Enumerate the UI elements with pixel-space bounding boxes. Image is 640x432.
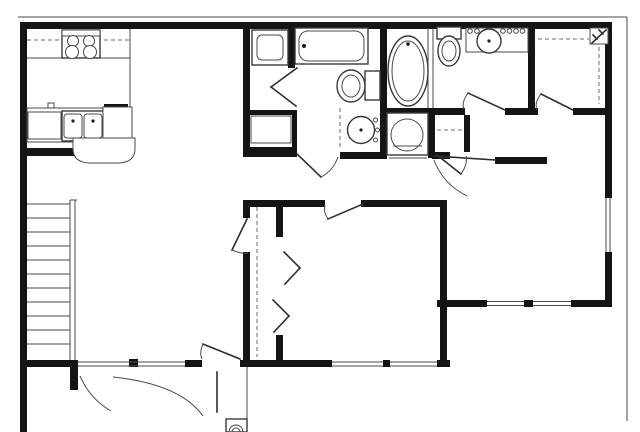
wall-kitchen-divider — [20, 148, 75, 156]
toilet-tank — [365, 71, 380, 100]
wall-closet-bottom — [573, 108, 612, 115]
stove-burner — [66, 46, 79, 59]
utility-closet-inner — [251, 116, 291, 143]
vanity-light-bulb — [475, 29, 480, 34]
stove-burner — [68, 36, 79, 47]
wall-laundry-right — [428, 115, 435, 158]
wall-closet-partition-a — [276, 200, 283, 237]
wall-bedroom-mid-right — [440, 207, 447, 367]
stove-burner — [84, 36, 95, 47]
wall-hall-south — [495, 157, 547, 164]
wall-bottom-stub — [383, 360, 390, 367]
garden-tub-faucet-dot — [406, 42, 410, 46]
sink-drain-dot — [359, 128, 362, 131]
door-leaf-bedroom-mid-bottom — [203, 344, 240, 359]
faucet-dot — [91, 119, 94, 122]
vanity-light-bulb — [507, 29, 512, 34]
window-side-opening — [604, 198, 613, 252]
door-leaf-bedroom-mid-left — [232, 219, 247, 250]
floor-plan-page — [0, 0, 640, 432]
shower-pan — [257, 35, 283, 60]
master-toilet-bowl-inner — [442, 41, 456, 61]
stove-burner — [84, 46, 97, 59]
dishwasher — [28, 112, 61, 139]
utility-closet-wall-top — [245, 110, 297, 115]
wall-bedroom-mid-left-b — [243, 252, 250, 367]
wall-walkin-closet-left — [528, 28, 535, 115]
sink-bowl-right — [84, 114, 102, 138]
vanity-light-bulb — [520, 29, 525, 34]
door-leaf-bedroom-mid-top — [328, 204, 363, 219]
wall-bottom-b — [185, 360, 202, 367]
vanity-light-bulb — [514, 29, 519, 34]
faucet-knob — [376, 128, 380, 132]
door-leaf-hallbath — [297, 154, 321, 177]
faucet-knob — [374, 118, 378, 122]
door-arc-bedroom-mid-left — [232, 250, 248, 253]
door-leaf-walkin-closet — [541, 94, 573, 110]
wall-bottom-c — [240, 360, 332, 367]
wall-hallbath-right — [380, 28, 387, 158]
floor-plan-canvas — [0, 0, 640, 432]
wall-bedroom-mid-left-a — [243, 207, 250, 218]
master-sink-drain-dot — [487, 39, 490, 42]
toilet-bowl-inner — [342, 75, 360, 97]
shower-door-fold-b — [271, 87, 296, 106]
bifold-door-a1 — [284, 252, 300, 268]
garden-tub-inner — [392, 41, 424, 101]
sink-bowl-left — [64, 114, 82, 138]
faucet-knob — [374, 138, 378, 142]
bifold-door-b1 — [273, 300, 289, 316]
entry-side-door-arc — [80, 376, 111, 411]
faucet-dot — [71, 119, 74, 122]
shower-door-fold-a — [271, 68, 297, 87]
door-arc-bedroom-mid-bottom — [201, 344, 203, 359]
wall-right-exterior-lower — [605, 252, 612, 307]
utility-closet-wall-left — [245, 110, 250, 152]
wall-small-closet-right — [464, 115, 470, 152]
wall-bedroom-mid-top-b — [361, 200, 447, 207]
wall-masterbath-mid-b — [447, 108, 465, 115]
tub-faucet-dot — [302, 44, 306, 48]
window-mullion-post — [524, 300, 533, 307]
wall-bedroom-right-bottom-b — [571, 300, 612, 307]
wall-entry-stub — [70, 360, 78, 390]
wall-hallbath-stub — [288, 28, 295, 68]
door-arc-bedroom-mid-top — [324, 205, 328, 219]
wall-bottom-a — [20, 360, 78, 367]
door-arc-masterbath — [463, 93, 468, 109]
stove-back-panel — [62, 30, 100, 36]
vanity-light-bulb — [468, 29, 473, 34]
bar-counter — [73, 138, 135, 163]
vanity-light-bulb — [501, 29, 506, 34]
wall-left-exterior — [20, 22, 27, 432]
wall-hall-bottom-b — [340, 152, 387, 159]
front-door-arc — [113, 377, 203, 416]
utility-closet-wall-bottom — [245, 147, 297, 152]
utility-closet-wall-right — [292, 110, 297, 152]
bifold-door-b2 — [274, 316, 289, 332]
bathtub-inner — [299, 31, 364, 61]
bifold-door-a2 — [285, 268, 300, 284]
door-arc-walkin-closet — [536, 94, 541, 110]
wall-bottom-d — [437, 360, 450, 367]
counter-tick — [48, 103, 54, 108]
door-leaf-masterbath — [468, 93, 505, 110]
wall-bedroom-mid-top-a — [243, 200, 325, 207]
door-arc-hallbath — [321, 157, 338, 177]
